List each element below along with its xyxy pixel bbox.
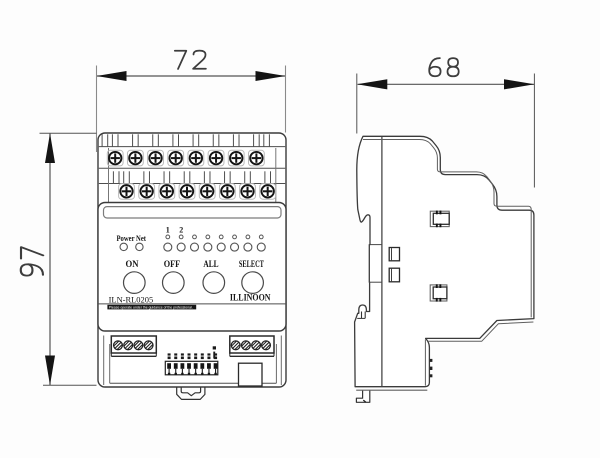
svg-text:ILLINOON: ILLINOON <box>230 293 271 304</box>
svg-text:SELECT: SELECT <box>239 259 264 269</box>
svg-text:1: 1 <box>166 225 170 234</box>
svg-text:ILN-RL0205: ILN-RL0205 <box>109 294 154 304</box>
svg-text:2: 2 <box>179 225 183 234</box>
svg-text:ALL: ALL <box>203 259 218 269</box>
svg-text:Power Net: Power Net <box>117 233 147 243</box>
svg-text:Please operate under the guida: Please operate under the guidance of the… <box>109 305 193 310</box>
svg-text:ON: ON <box>126 259 139 269</box>
svg-text:OFF: OFF <box>164 259 181 269</box>
